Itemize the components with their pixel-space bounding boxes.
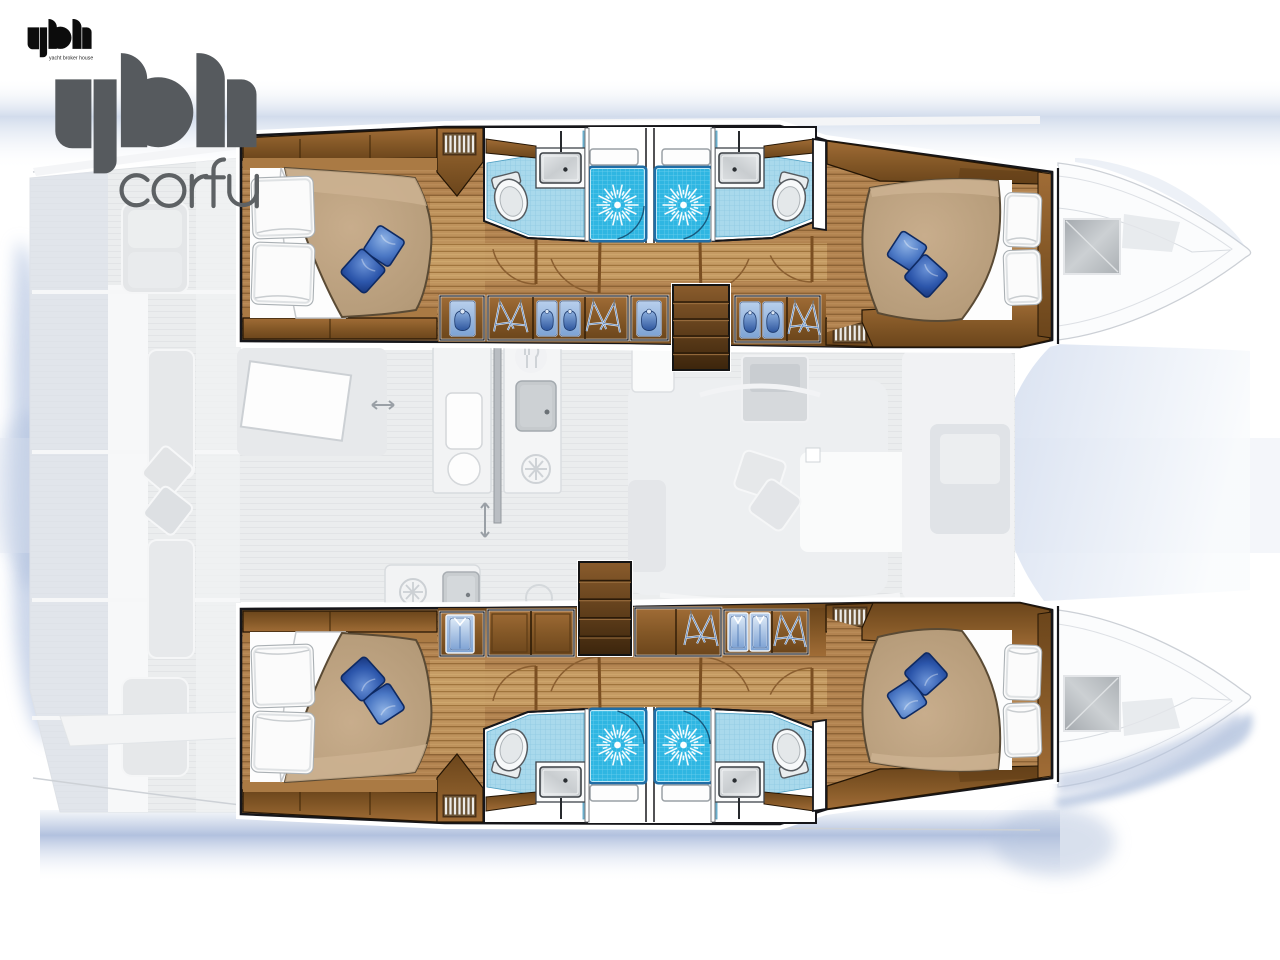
svg-text:yacht broker house: yacht broker house — [49, 56, 93, 62]
